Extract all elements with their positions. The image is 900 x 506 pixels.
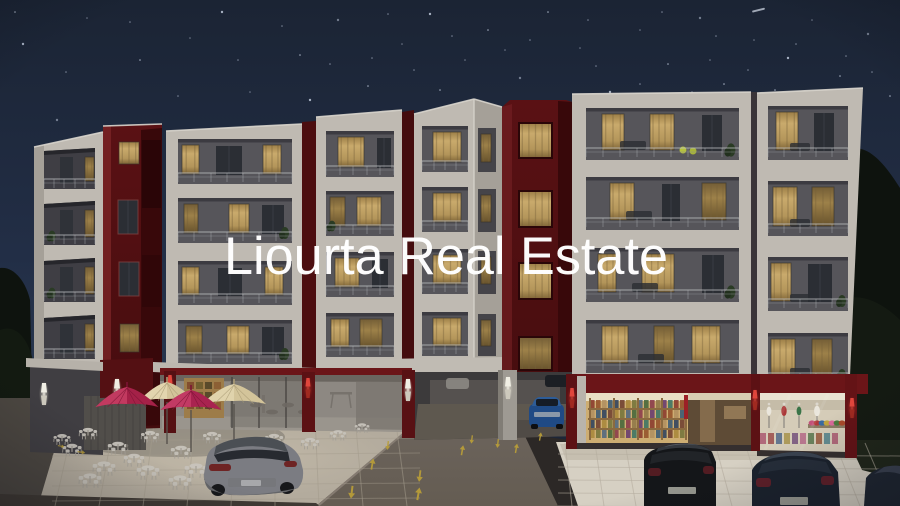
svg-text:Liourta Real Estate: Liourta Real Estate (224, 227, 668, 286)
